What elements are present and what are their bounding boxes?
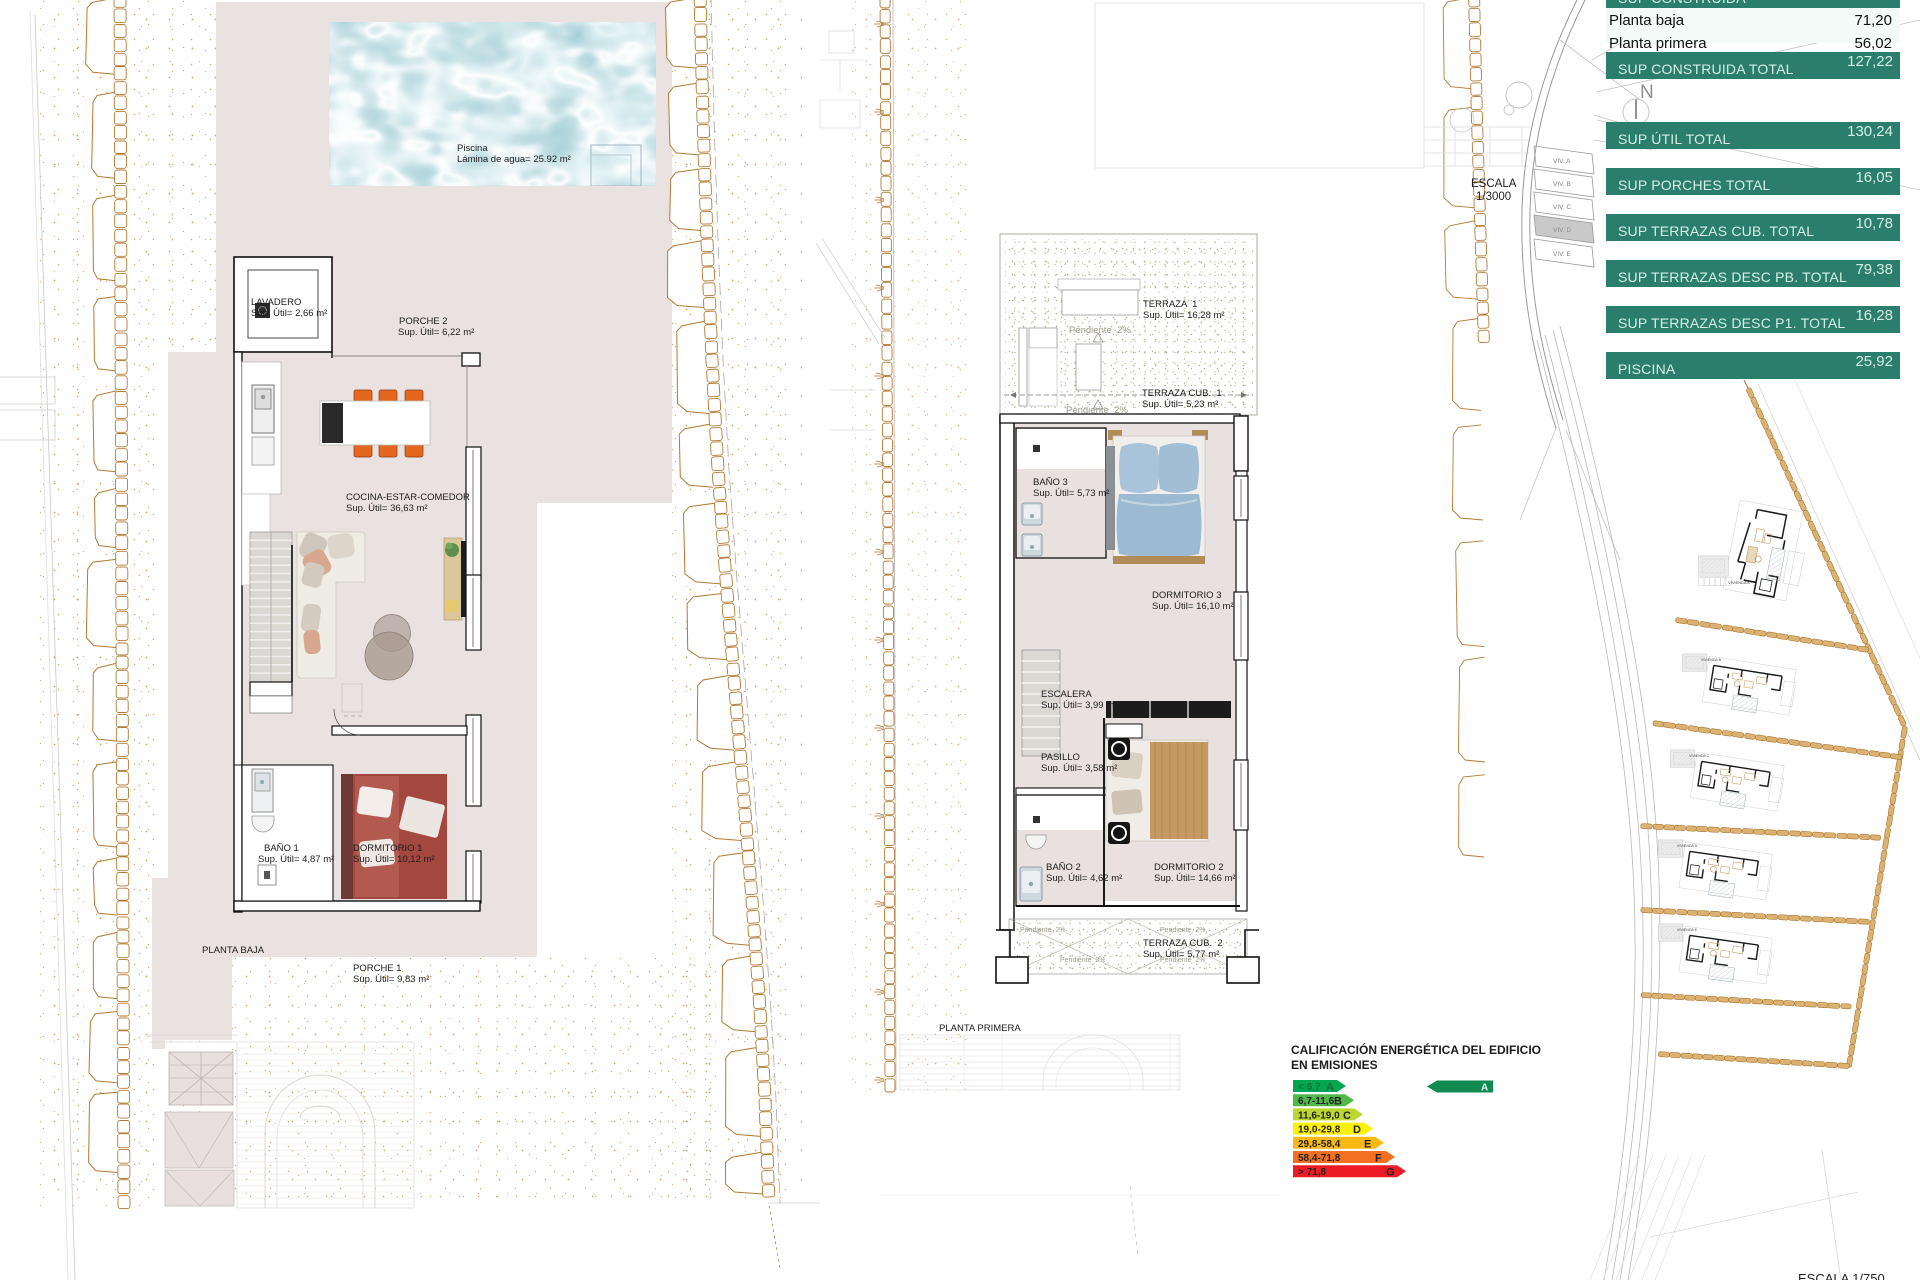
svg-text:E: E [1364, 1138, 1371, 1150]
svg-text:A: A [1326, 1082, 1334, 1094]
svg-text:F: F [1375, 1153, 1382, 1165]
svg-text:11,6-19,0: 11,6-19,0 [1298, 1110, 1340, 1121]
svg-text:29,8-58,4: 29,8-58,4 [1298, 1139, 1341, 1150]
svg-text:A: A [1481, 1083, 1488, 1094]
svg-text:C: C [1343, 1110, 1351, 1122]
svg-text:D: D [1353, 1124, 1361, 1136]
svg-text:58,4-71,8: 58,4-71,8 [1298, 1153, 1341, 1164]
svg-text:VIVIENDA D: VIVIENDA D [1677, 844, 1698, 848]
svg-text:B: B [1334, 1096, 1342, 1108]
svg-text:ESCALA 1/750: ESCALA 1/750 [1798, 1271, 1885, 1280]
svg-text:VIVIENDA B: VIVIENDA B [1701, 658, 1722, 662]
svg-text:VIVIENDA C: VIVIENDA C [1689, 754, 1710, 758]
svg-text:VIVIENDA E: VIVIENDA E [1677, 928, 1698, 932]
svg-text:6,7-11,6: 6,7-11,6 [1298, 1096, 1335, 1107]
svg-text:19,0-29,8: 19,0-29,8 [1298, 1125, 1341, 1136]
svg-text:G: G [1386, 1167, 1395, 1179]
svg-text:VIVIENDA A: VIVIENDA A [1728, 580, 1750, 585]
svg-text:< 6,7: < 6,7 [1298, 1082, 1321, 1093]
svg-text:> 71,8: > 71,8 [1298, 1167, 1327, 1178]
